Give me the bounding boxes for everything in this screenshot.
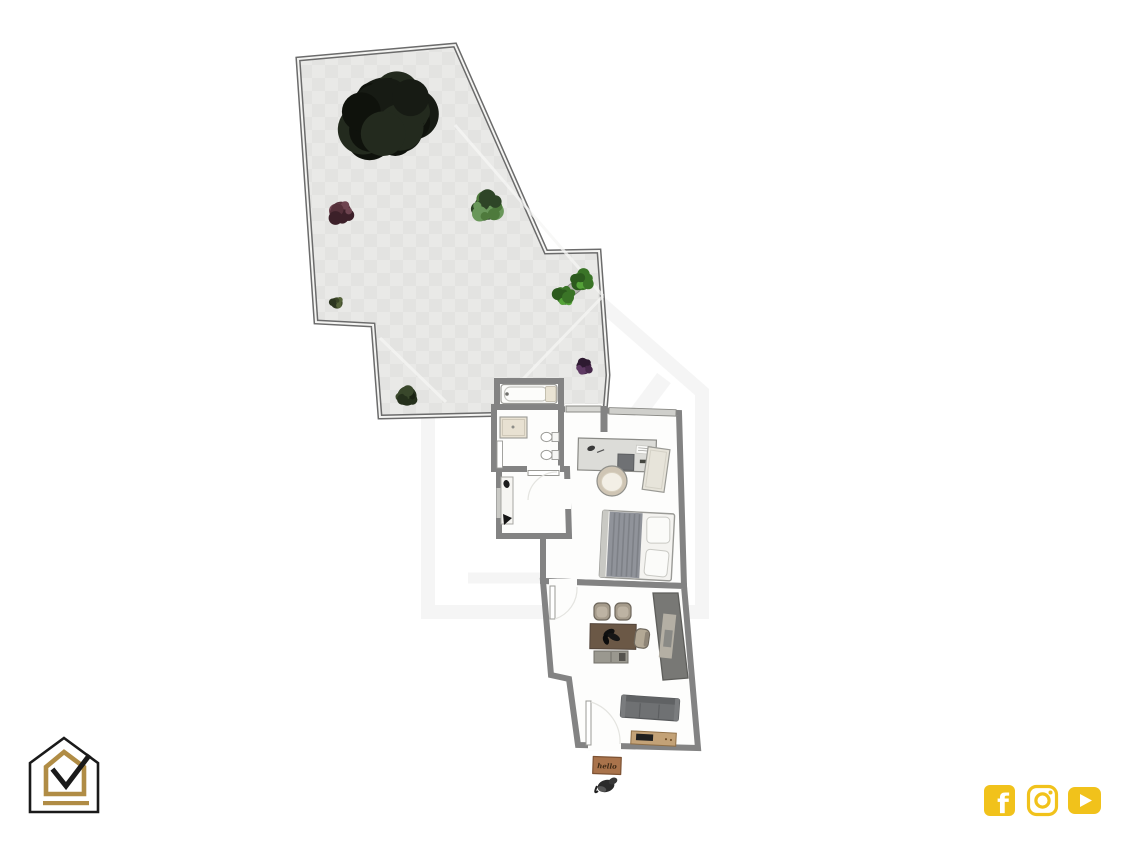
bidet: [541, 450, 559, 459]
toilet: [541, 432, 559, 441]
house-checkmark-logo: [30, 738, 98, 812]
dining-armchair: [634, 628, 651, 649]
instagram-icon[interactable]: [1029, 787, 1057, 815]
pillow: [644, 549, 670, 577]
doormat-text: hello: [597, 761, 617, 771]
logo-underline: [43, 801, 89, 805]
dark-figurine: [595, 776, 618, 794]
entry-door-leaf: [586, 701, 591, 745]
facebook-icon[interactable]: f: [984, 785, 1015, 820]
social-icons: f: [984, 785, 1101, 820]
doormat: hello: [593, 757, 622, 775]
shower-room-door-leaf: [497, 441, 503, 468]
living-door-leaf: [550, 586, 555, 619]
apartment: hello: [494, 381, 698, 794]
tv-sideboard: [631, 731, 677, 746]
pillow: [647, 517, 670, 543]
hall-bedroom-opening: [562, 479, 571, 509]
entry-outside: hello: [593, 757, 622, 794]
wall-stub: [601, 406, 608, 432]
garden-surface: [298, 45, 608, 417]
bathtub: [501, 385, 557, 404]
dining-chair: [615, 603, 631, 620]
svg-text:f: f: [997, 789, 1009, 820]
double-bed: [599, 510, 674, 581]
floor-plan-canvas: hello f: [0, 0, 1133, 850]
dining-chair: [594, 603, 610, 620]
tv: [636, 734, 653, 741]
garden-terrace: [298, 45, 608, 417]
logo-house-outline: [30, 738, 98, 812]
floor-plan-page: hello f: [0, 0, 1133, 850]
hall-console-bench: [501, 477, 513, 525]
terrace-glass-door: [566, 406, 601, 412]
round-chair: [597, 466, 627, 496]
youtube-icon[interactable]: [1068, 787, 1101, 814]
storage-bench: [594, 651, 628, 663]
dining-table: [590, 624, 636, 650]
sofa: [620, 695, 679, 721]
